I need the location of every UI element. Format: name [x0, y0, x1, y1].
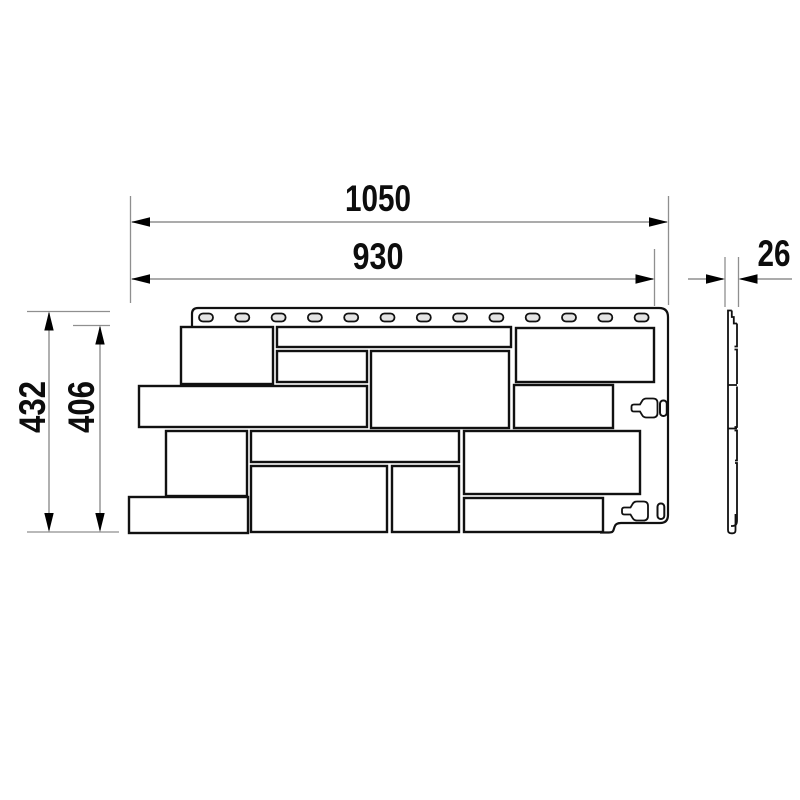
nail-slot-icon: [489, 314, 503, 322]
overall-width-label: 1050: [345, 178, 411, 219]
side-profile-left-edge: [728, 311, 736, 534]
overall-height-label: 432: [12, 381, 53, 433]
stone-block: [514, 385, 613, 428]
nail-slot-icon: [562, 314, 576, 322]
stone-block: [251, 466, 387, 532]
stone-block: [181, 327, 273, 384]
arrow-icon: [95, 326, 104, 345]
technical-drawing: 1050 930 432 406 26: [0, 0, 800, 800]
nail-slot-icon: [199, 314, 213, 322]
keyhole-latch-icon: [632, 399, 667, 418]
arrow-icon: [636, 274, 655, 284]
arrow-icon: [131, 274, 150, 284]
thickness-label: 26: [758, 233, 791, 274]
stone-block: [139, 386, 367, 427]
nail-slot-icon: [526, 314, 540, 322]
panel-height-label: 406: [61, 381, 102, 433]
stone-block: [464, 498, 603, 532]
nail-slot-icon: [417, 314, 431, 322]
nail-slot-icon: [598, 314, 612, 322]
arrow-icon: [649, 217, 668, 227]
nail-slot-icon: [381, 314, 395, 322]
nail-slot-icon: [344, 314, 358, 322]
nail-slot-icon: [272, 314, 286, 322]
arrow-icon: [706, 274, 725, 284]
arrow-icon: [44, 513, 53, 532]
nail-slots: [199, 314, 649, 322]
nail-slot-icon: [453, 314, 467, 322]
drawing-page: 1050 930 432 406 26: [0, 0, 800, 800]
stone-block: [129, 497, 248, 533]
panel-front-view: [129, 308, 668, 533]
stone-block: [392, 466, 459, 532]
panel-side-view: [728, 311, 737, 534]
arrow-icon: [131, 217, 150, 227]
stone-block: [277, 351, 367, 382]
arrow-icon: [739, 274, 758, 284]
stone-block: [166, 431, 247, 496]
nail-slot-icon: [235, 314, 249, 322]
nail-slot-icon: [308, 314, 322, 322]
stone-block: [464, 431, 640, 494]
side-profile-right-edge: [728, 324, 737, 527]
nail-slot-icon: [635, 314, 649, 322]
keyhole-latch-icon: [622, 502, 664, 521]
arrow-icon: [95, 513, 104, 532]
panel-width-label: 930: [353, 236, 404, 277]
arrow-icon: [44, 312, 53, 331]
stone-block: [371, 351, 509, 428]
stone-block: [251, 431, 459, 462]
stone-block: [277, 327, 511, 347]
side-profile-top-nub: [732, 311, 737, 324]
stone-block: [516, 328, 654, 382]
stone-blocks: [129, 327, 654, 533]
